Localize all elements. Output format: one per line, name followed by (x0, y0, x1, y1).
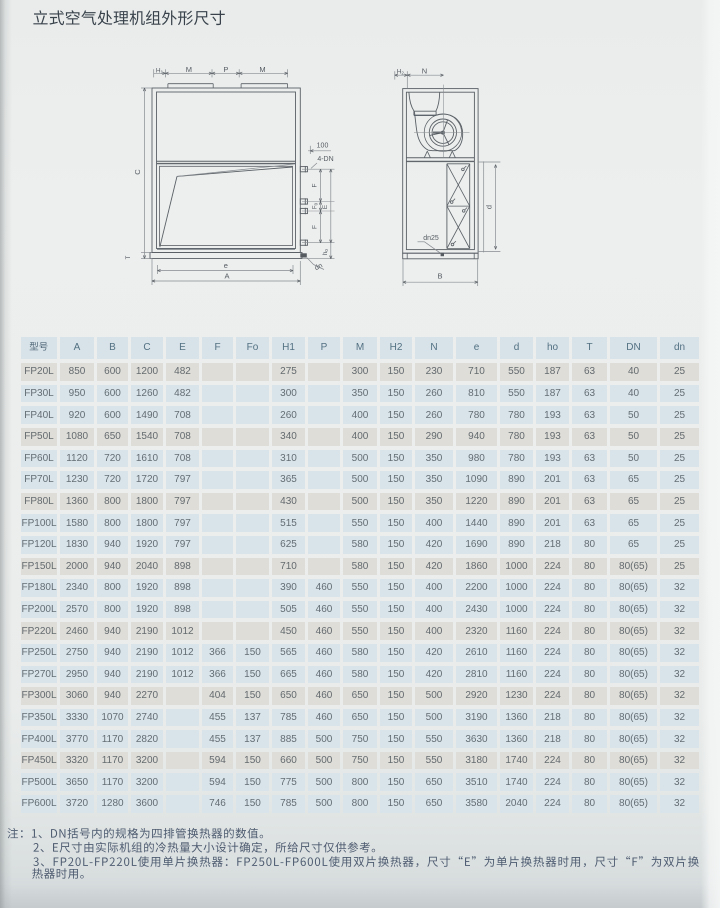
svg-text:F: F (312, 225, 319, 229)
svg-text:E: E (322, 204, 329, 209)
svg-text:4-DN: 4-DN (317, 156, 333, 163)
svg-text:N: N (422, 66, 427, 75)
svg-text:H1: H1 (156, 67, 164, 74)
svg-text:F: F (312, 183, 319, 187)
svg-text:M: M (259, 65, 265, 74)
svg-text:F0: F0 (313, 202, 319, 209)
svg-text:P: P (223, 65, 228, 74)
svg-text:C: C (133, 169, 142, 175)
svg-text:100: 100 (317, 142, 329, 149)
svg-text:e: e (224, 261, 228, 270)
svg-text:M: M (186, 65, 192, 74)
svg-text:A: A (224, 271, 229, 280)
svg-text:H2: H2 (397, 68, 405, 75)
svg-text:dn25: dn25 (423, 235, 439, 242)
svg-text:h0: h0 (323, 249, 329, 255)
svg-text:T: T (126, 255, 132, 259)
svg-text:d: d (484, 205, 493, 209)
svg-text:B: B (437, 272, 442, 281)
svg-text:dn: dn (314, 262, 324, 272)
